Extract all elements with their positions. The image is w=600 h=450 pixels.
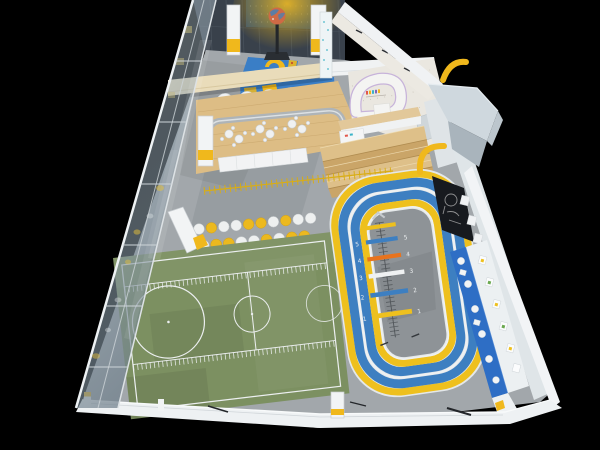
wall-post	[158, 399, 164, 411]
render-canvas: { "scene": { "description": "Aerial 3D r…	[0, 0, 600, 450]
yellow-swoosh-top	[443, 62, 466, 80]
speckle-tower	[320, 12, 332, 78]
hoop-pole	[276, 24, 279, 54]
sports-center-render: 5 5 4 4 3 3 2 2 1 1	[0, 0, 600, 450]
